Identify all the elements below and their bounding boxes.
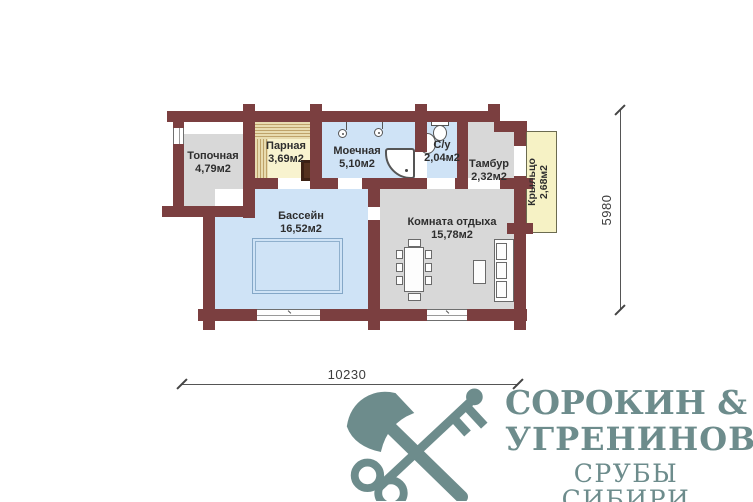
room-area: 5,10м2 — [333, 158, 380, 171]
pool-inner-edge — [255, 241, 340, 291]
ceiling-shower-icon — [374, 128, 383, 137]
wall-top — [167, 111, 500, 122]
chair — [425, 263, 432, 272]
wall-pool-lounge — [368, 178, 380, 207]
sofa-cushion — [496, 281, 507, 298]
room-area: 2,32м2 — [469, 171, 509, 184]
room-label-moechnaya: Моечная5,10м2 — [333, 145, 380, 170]
room-label-topochnaya: Топочная4,79м2 — [187, 150, 238, 175]
logo-text: СОРОКИН& УГРЕНИНОВ СРУБЫ СИБИРИ — [505, 386, 747, 502]
logo-name-1: СОРОКИН — [505, 386, 706, 420]
wall-parnaya-left — [243, 104, 255, 218]
chair — [425, 250, 432, 259]
floor-plan-canvas: Топочная4,79м2 Парная3,69м2 Моечная5,10м… — [0, 0, 753, 502]
axe-and-key-logo-icon — [338, 383, 495, 501]
wall-left-lower — [203, 206, 215, 330]
room-area: 2,68м2 — [538, 150, 550, 214]
wall-notch — [215, 189, 243, 206]
room-area: 15,78м2 — [407, 229, 496, 242]
room-name: Топочная — [187, 150, 238, 163]
chair — [408, 293, 421, 301]
shower-stem — [346, 122, 347, 130]
pool — [252, 238, 343, 294]
room-area: 4,79м2 — [187, 163, 238, 176]
room-label-su: С/у2,04м2 — [424, 139, 460, 164]
logo-ampersand: & — [717, 386, 747, 420]
chair — [425, 276, 432, 285]
chair — [396, 276, 403, 285]
window — [173, 128, 184, 144]
chair — [396, 263, 403, 272]
wall-lounge-top — [380, 178, 427, 189]
room-name: С/у — [424, 139, 460, 152]
logo-line-1: СОРОКИН& — [505, 386, 747, 420]
room-label-porch: Крыльцо 2,68м2 — [526, 150, 556, 214]
room-area: 2,04м2 — [424, 152, 460, 165]
room-area: 16,52м2 — [278, 223, 324, 236]
wall-pool-lounge — [368, 220, 380, 330]
room-name: Тамбур — [469, 158, 509, 171]
shower-stem — [382, 122, 383, 129]
dimension-height-label: 5980 — [592, 192, 620, 228]
coffee-table — [473, 260, 486, 284]
room-name: Моечная — [333, 145, 380, 158]
ceiling-shower-icon — [338, 129, 347, 138]
wall-moechnaya-bottom — [322, 178, 338, 189]
room-name: Парная — [266, 140, 306, 153]
window — [427, 309, 467, 321]
room-name: Крыльцо — [526, 150, 538, 214]
sauna-bench-top — [255, 122, 310, 139]
room-label-tambur: Тамбур2,32м2 — [469, 158, 509, 183]
dimension-line-vertical — [620, 110, 621, 310]
wall-parnaya-right — [310, 104, 322, 189]
sofa-cushion — [496, 243, 507, 260]
room-label-parnaya: Парная3,69м2 — [266, 140, 306, 165]
window — [257, 309, 320, 321]
chair — [396, 250, 403, 259]
wall-right-outer — [514, 121, 526, 146]
wall-log-end — [488, 104, 500, 112]
sofa — [494, 239, 514, 302]
room-name: Комната отдыха — [407, 216, 496, 229]
dining-table — [404, 247, 424, 292]
wall-left-upper — [173, 144, 184, 206]
dimension-width-label: 10230 — [307, 367, 387, 382]
sofa-cushion — [496, 262, 507, 279]
wall-right-outer — [514, 176, 526, 330]
logo-tagline: СРУБЫ СИБИРИ — [505, 461, 747, 502]
room-name: Бассейн — [278, 210, 324, 223]
room-label-lounge: Комната отдыха15,78м2 — [407, 216, 496, 241]
wall-left-upper — [173, 111, 184, 128]
logo-line-2: УГРЕНИНОВ — [505, 422, 747, 456]
room-label-bassein: Бассейн16,52м2 — [278, 210, 324, 235]
room-area: 3,69м2 — [266, 153, 306, 166]
